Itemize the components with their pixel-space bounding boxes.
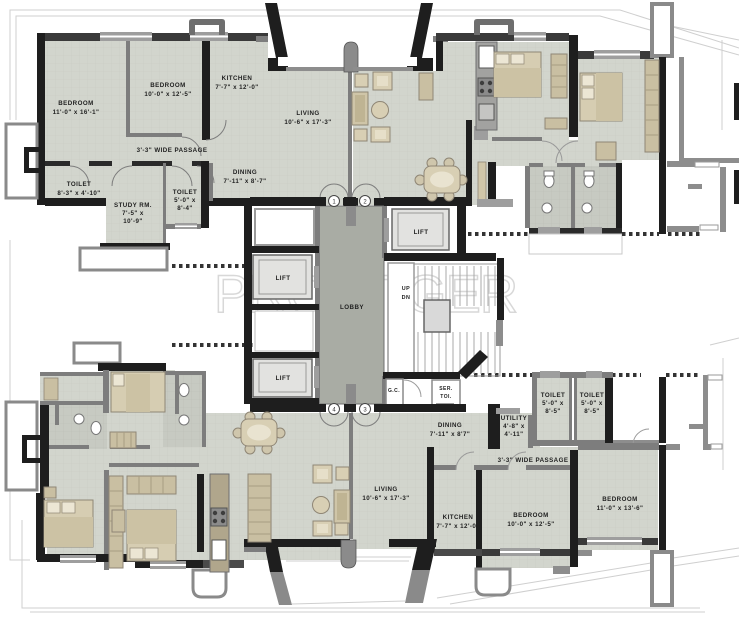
- svg-text:5'-0" x: 5'-0" x: [542, 400, 564, 407]
- svg-text:LIVING: LIVING: [296, 110, 319, 117]
- svg-text:LIVING: LIVING: [374, 486, 397, 493]
- svg-text:7'-7" x 12'-0": 7'-7" x 12'-0": [436, 523, 479, 530]
- svg-text:4'-11": 4'-11": [504, 431, 523, 438]
- svg-text:TOILET: TOILET: [173, 189, 198, 196]
- svg-text:10'-9": 10'-9": [123, 218, 143, 225]
- svg-text:5'-0" x: 5'-0" x: [174, 197, 196, 204]
- svg-text:7'-11" x 8'7": 7'-11" x 8'7": [430, 431, 470, 438]
- svg-text:UP: UP: [402, 286, 410, 292]
- svg-text:LIFT: LIFT: [276, 375, 291, 382]
- svg-text:BEDROOM: BEDROOM: [602, 496, 637, 503]
- svg-text:10'-6" x 17'-3": 10'-6" x 17'-3": [284, 119, 331, 126]
- svg-text:10'-0" x 12'-5": 10'-0" x 12'-5": [507, 521, 554, 528]
- svg-text:STUDY RM.: STUDY RM.: [114, 202, 152, 209]
- svg-text:10'-0" x 12'-5": 10'-0" x 12'-5": [144, 91, 191, 98]
- svg-text:TOILET: TOILET: [541, 392, 566, 399]
- svg-text:BEDROOM: BEDROOM: [58, 100, 93, 107]
- svg-text:G.C.: G.C.: [388, 388, 400, 394]
- svg-text:LIFT: LIFT: [276, 275, 291, 282]
- svg-text:DINING: DINING: [438, 422, 462, 429]
- svg-text:KITCHEN: KITCHEN: [222, 75, 253, 82]
- svg-text:LIFT: LIFT: [414, 229, 429, 236]
- svg-text:7'-11" x 8'-7": 7'-11" x 8'-7": [224, 178, 267, 185]
- svg-text:KITCHEN: KITCHEN: [443, 514, 474, 521]
- svg-text:8'-5": 8'-5": [584, 408, 600, 415]
- svg-text:UTILITY: UTILITY: [501, 415, 528, 422]
- svg-text:3'-3" WIDE PASSAGE: 3'-3" WIDE PASSAGE: [137, 147, 208, 154]
- svg-text:7'-5" x: 7'-5" x: [122, 210, 144, 217]
- svg-text:11'-0" x 13'-6": 11'-0" x 13'-6": [597, 505, 644, 512]
- svg-text:BEDROOM: BEDROOM: [513, 512, 548, 519]
- svg-text:5'-0" x: 5'-0" x: [581, 400, 603, 407]
- svg-text:TOI.: TOI.: [440, 394, 452, 400]
- svg-text:TOILET: TOILET: [67, 181, 92, 188]
- svg-text:DN: DN: [402, 295, 411, 301]
- svg-text:TOILET: TOILET: [580, 392, 605, 399]
- svg-text:7'-7" x 12'-0": 7'-7" x 12'-0": [215, 84, 258, 91]
- svg-text:8'-5": 8'-5": [545, 408, 561, 415]
- svg-text:SER.: SER.: [439, 386, 453, 392]
- svg-text:DINING: DINING: [233, 169, 257, 176]
- svg-text:3'-3" WIDE PASSAGE: 3'-3" WIDE PASSAGE: [498, 457, 569, 464]
- svg-text:8'-3" x 4'-10": 8'-3" x 4'-10": [57, 190, 100, 197]
- svg-text:8'-4": 8'-4": [177, 205, 193, 212]
- svg-text:LOBBY: LOBBY: [340, 304, 364, 311]
- svg-text:10'-6" x 17'-3": 10'-6" x 17'-3": [362, 495, 409, 502]
- svg-text:11'-0" x 16'-1": 11'-0" x 16'-1": [53, 109, 100, 116]
- svg-text:BEDROOM: BEDROOM: [150, 82, 185, 89]
- svg-text:4'-8" x: 4'-8" x: [503, 423, 525, 430]
